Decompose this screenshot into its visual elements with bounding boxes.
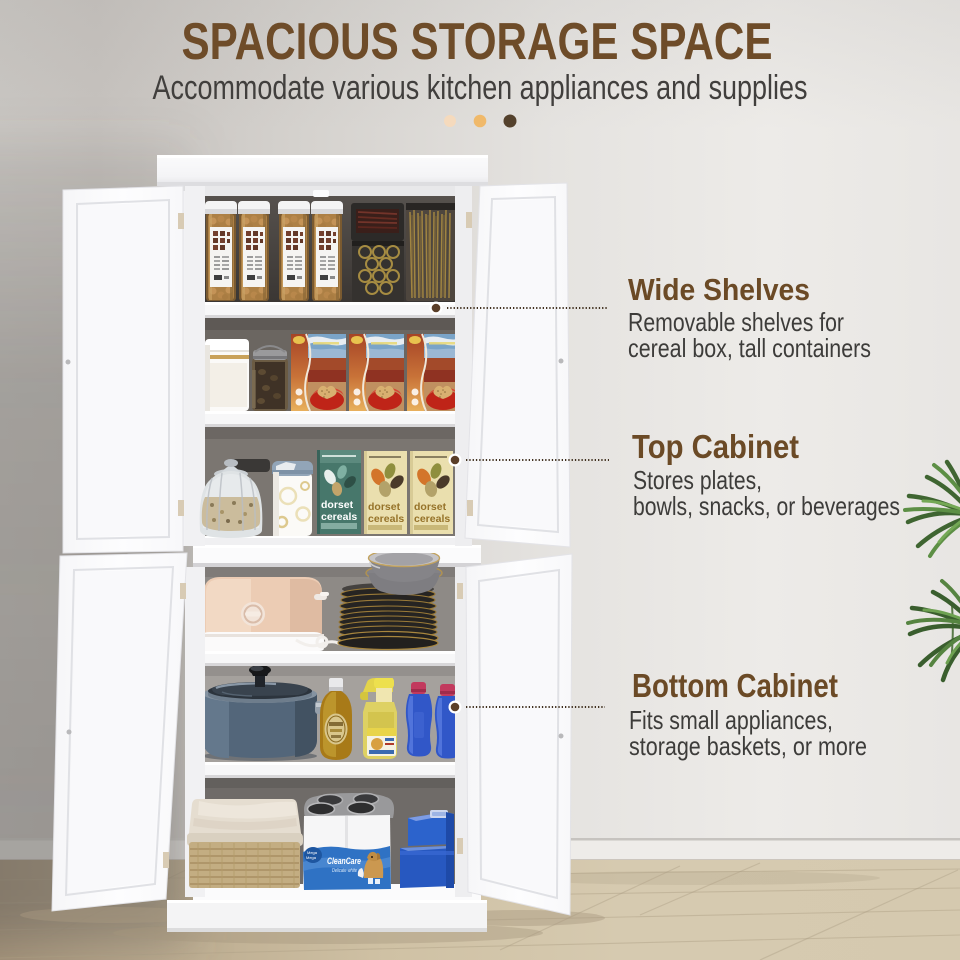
svg-text:dorset: dorset	[321, 499, 354, 511]
svg-text:bowls, snacks, or beverages: bowls, snacks, or beverages	[633, 491, 900, 521]
svg-text:cereals: cereals	[321, 511, 357, 523]
svg-text:dorset: dorset	[414, 501, 447, 513]
svg-text:cereals: cereals	[414, 513, 450, 525]
svg-text:CleanCare: CleanCare	[327, 856, 361, 866]
svg-text:Wide Shelves: Wide Shelves	[628, 272, 810, 307]
svg-text:cereals: cereals	[368, 513, 404, 525]
svg-text:Top Cabinet: Top Cabinet	[632, 428, 799, 465]
svg-text:Mega: Mega	[306, 855, 317, 860]
svg-text:SPACIOUS STORAGE SPACE: SPACIOUS STORAGE SPACE	[182, 13, 773, 71]
svg-text:Delicate white: Delicate white	[332, 868, 357, 874]
svg-text:dorset: dorset	[368, 501, 401, 513]
svg-text:Bottom Cabinet: Bottom Cabinet	[632, 667, 838, 704]
svg-text:storage baskets, or more: storage baskets, or more	[629, 731, 867, 761]
svg-text:Accommodate various kitchen ap: Accommodate various kitchen appliances a…	[153, 69, 808, 107]
svg-text:cereal box, tall containers: cereal box, tall containers	[628, 333, 871, 363]
